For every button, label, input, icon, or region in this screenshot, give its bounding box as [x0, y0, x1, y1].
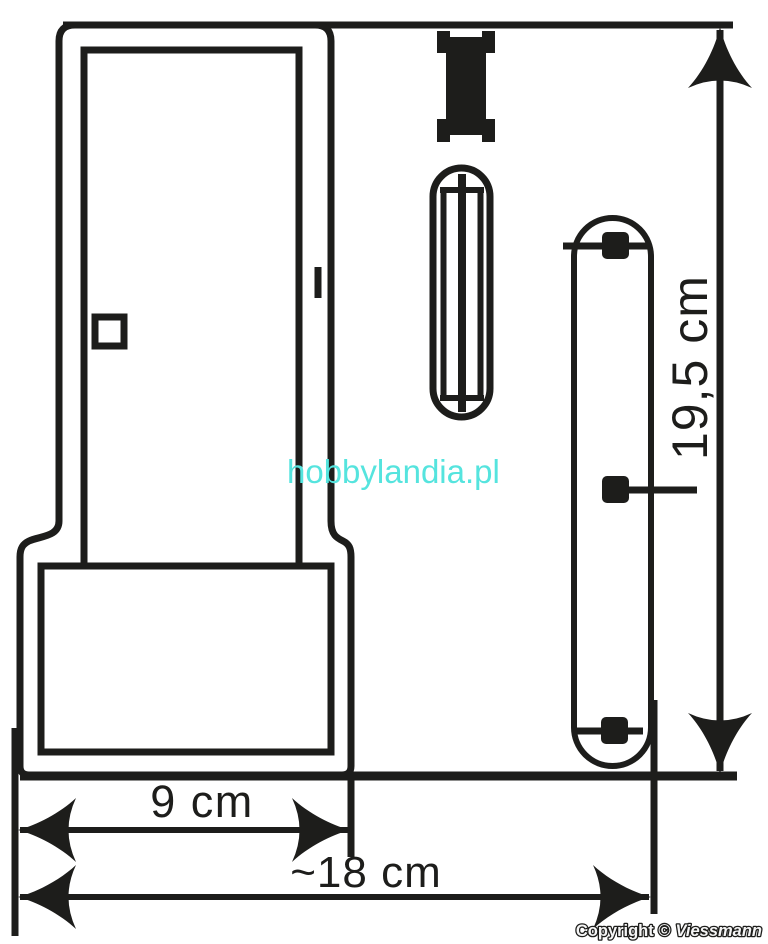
product-dimension-diagram: 19,5 cm 9 cm ~18 cm hobbylandia.pl Copyr… [0, 0, 768, 944]
copyright-brand-viessmann: Viessmann [675, 922, 762, 940]
base-width-dimension-label: 9 cm [150, 776, 254, 827]
bracket-center-bar [463, 50, 469, 122]
overall-width-arrow-right [593, 865, 651, 929]
watermark-text: hobbylandia.pl [287, 453, 500, 490]
mast-bottom-contact-square [601, 717, 628, 744]
height-dimension-label: 19,5 cm [662, 275, 718, 460]
height-arrow-down [688, 713, 752, 774]
tube-part-side-view [433, 168, 490, 417]
bracket-right-bar [473, 50, 486, 122]
lamp-post-front-view [20, 25, 351, 775]
mast-middle-contact-square [602, 476, 629, 503]
copyright-prefix: Copyright © [576, 922, 671, 940]
lamp-post-inner-panel [84, 50, 299, 566]
bracket-part-top-view [437, 31, 495, 142]
overall-width-dimension-label: ~18 cm [290, 848, 442, 897]
lamp-base-inner-rect [41, 566, 331, 752]
height-arrow-up [688, 27, 752, 88]
copyright-text: Copyright ©Viessmann [576, 922, 762, 940]
base-width-arrow-left [18, 798, 76, 862]
dimension-overall-width: ~18 cm [18, 848, 651, 929]
lamp-door-detail [95, 317, 124, 346]
diagram-canvas: 19,5 cm 9 cm ~18 cm hobbylandia.pl Copyr… [0, 0, 768, 944]
mast-top-contact-square [602, 232, 629, 259]
dimension-height: 19,5 cm [662, 27, 752, 774]
bracket-left-bar [446, 50, 459, 122]
overall-width-arrow-left [18, 865, 76, 929]
